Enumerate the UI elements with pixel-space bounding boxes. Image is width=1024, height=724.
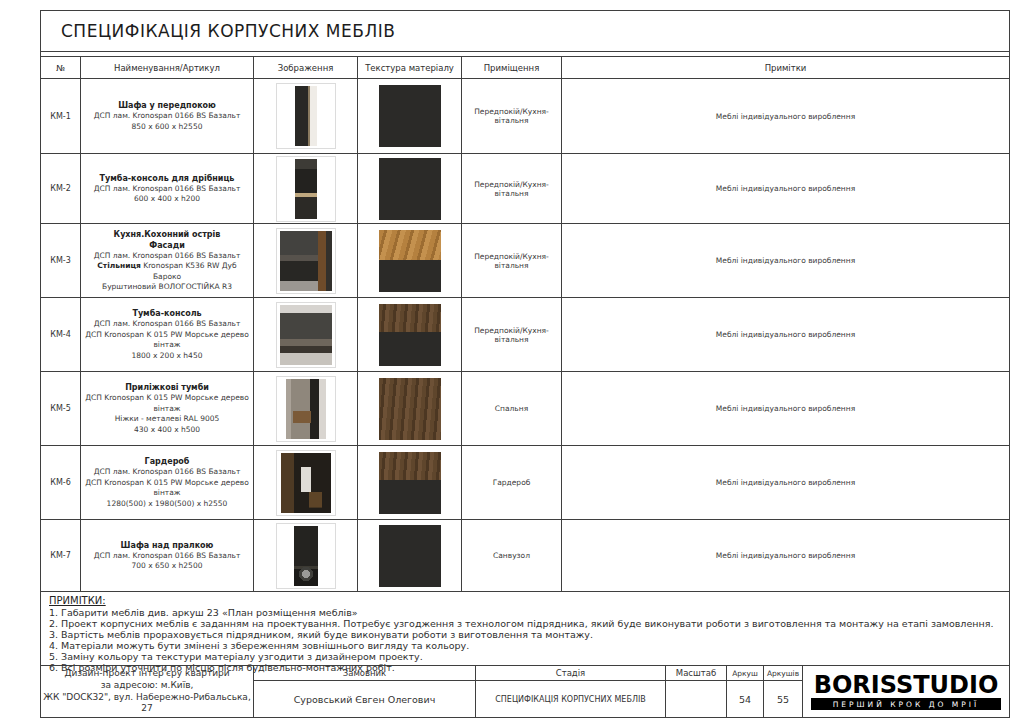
note-item: 5. Заміну кольору та текстури матеріалу … [49,651,1001,662]
texture-swatch [379,525,441,587]
project-line: ЖК "DOCK32", вул. Набережно-Рибальська, … [43,692,251,715]
furniture-photo [295,86,317,146]
customer-label: Замовник [254,666,476,681]
row-image-cell [254,154,358,224]
row-texture-cell [358,154,462,224]
note-item: 1. Габарити меблів див. аркуш 23 «План р… [49,607,1001,618]
photo-frame [276,450,336,516]
row-name-cell: Кухня.Кохонний острівФасадиДСП лам. Kron… [81,224,254,298]
row-note: Меблі індивідуального вироблення [562,446,1009,520]
column-header-notes: Примітки [562,57,1009,79]
sheet-label: Аркуш [727,666,764,681]
scale-label: Масштаб [666,666,727,681]
sheets-label: Аркушів [764,666,803,681]
project-line: Дизайн-проект інтер'єру квартири [64,668,229,680]
row-id: КМ-6 [41,446,81,520]
sheets-value: 55 [764,681,803,717]
row-room: Санвузол [462,520,562,592]
row-room: Передпокій/Кухня-вітальня [462,298,562,372]
page-title: СПЕЦИФІКАЦІЯ КОРПУСНИХ МЕБЛІВ [61,21,395,41]
column-header-number: № [41,57,81,79]
row-room: Передпокій/Кухня-вітальня [462,79,562,154]
photo-frame [276,83,336,149]
texture-swatch [379,158,441,220]
row-note: Меблі індивідуального вироблення [562,298,1009,372]
furniture-photo [280,231,332,291]
photo-frame [276,228,336,294]
row-room: Передпокій/Кухня-вітальня [462,224,562,298]
logo-tagline: ПЕРШИЙ КРОК ДО МРІЇ [811,698,1001,710]
row-name-cell: Шафа у передпокоюДСП лам. Kronospan 0166… [81,79,254,154]
column-header-room: Приміщення [462,57,562,79]
row-note: Меблі індивідуального вироблення [562,372,1009,446]
stage-label: Стадія [476,666,666,681]
row-room: Гардероб [462,446,562,520]
row-id: КМ-1 [41,79,81,154]
photo-frame [276,302,336,368]
row-texture-cell [358,224,462,298]
furniture-photo [280,305,332,365]
studio-logo: BORISSTUDIO ПЕРШИЙ КРОК ДО МРІЇ [803,666,1009,717]
note-item: 2. Проект корпусних меблів є заданням на… [49,618,1001,629]
row-name-cell: Приліжкові тумбиДСП Kronospan K 015 PW М… [81,372,254,446]
title-block: Дизайн-проект інтер'єру квартири за адре… [41,666,1009,717]
row-id: КМ-5 [41,372,81,446]
spec-table: № Найменування/Артикул Зображення Тексту… [41,57,1009,592]
row-id: КМ-3 [41,224,81,298]
row-name-cell: Шафа над пралкоюДСП лам. Kronospan 0166 … [81,520,254,592]
row-name-cell: Тумба-консоль для дрібницьДСП лам. Krono… [81,154,254,224]
row-texture-cell [358,446,462,520]
furniture-photo [286,379,326,439]
row-id: КМ-7 [41,520,81,592]
photo-frame [276,523,336,589]
texture-swatch [379,452,441,514]
row-texture-cell [358,372,462,446]
note-item: 3. Вартість меблів прораховується підряд… [49,629,1001,640]
furniture-photo [281,453,331,513]
furniture-photo [295,159,317,219]
row-image-cell [254,79,358,154]
customer-value: Суровський Євген Олегович [254,681,476,717]
sheet-title-box: СПЕЦИФІКАЦІЯ КОРПУСНИХ МЕБЛІВ [41,11,1009,52]
row-texture-cell [358,298,462,372]
row-image-cell [254,446,358,520]
texture-swatch [379,230,441,292]
scale-value [666,681,727,717]
row-image-cell [254,298,358,372]
row-texture-cell [358,79,462,154]
row-note: Меблі індивідуального вироблення [562,520,1009,592]
texture-swatch [379,85,441,147]
row-note: Меблі індивідуального вироблення [562,79,1009,154]
row-image-cell [254,224,358,298]
column-header-texture: Текстура матеріалу [358,57,462,79]
row-name-cell: Тумба-консольДСП лам. Kronospan 0166 BS … [81,298,254,372]
texture-swatch [379,304,441,366]
row-room: Спальня [462,372,562,446]
furniture-photo [294,526,318,586]
row-note: Меблі індивідуального вироблення [562,224,1009,298]
row-id: КМ-2 [41,154,81,224]
project-line: за адресою: м.Київ, [101,680,194,692]
column-header-image: Зображення [254,57,358,79]
row-room: Передпокій/Кухня-вітальня [462,154,562,224]
row-note: Меблі індивідуального вироблення [562,154,1009,224]
project-info: Дизайн-проект інтер'єру квартири за адре… [41,666,254,717]
notes-heading: ПРИМІТКИ: [49,595,1001,606]
row-image-cell [254,372,358,446]
stage-value: СПЕЦИФІКАЦІЯ КОРПУСНИХ МЕБЛІВ [476,681,666,717]
photo-frame [276,156,336,222]
notes-section: ПРИМІТКИ: 1. Габарити меблів див. аркуш … [41,592,1009,666]
sheet-value: 54 [727,681,764,717]
row-texture-cell [358,520,462,592]
row-id: КМ-4 [41,298,81,372]
photo-frame [276,376,336,442]
column-header-name: Найменування/Артикул [81,57,254,79]
texture-swatch [379,378,441,440]
logo-wordmark: BORISSTUDIO [814,673,999,697]
row-name-cell: ГардеробДСП лам. Kronospan 0166 BS Базал… [81,446,254,520]
specification-sheet: СПЕЦИФІКАЦІЯ КОРПУСНИХ МЕБЛІВ № Найменув… [40,10,1010,718]
note-item: 4. Матеріали можуть бути змінені з збере… [49,640,1001,651]
row-image-cell [254,520,358,592]
